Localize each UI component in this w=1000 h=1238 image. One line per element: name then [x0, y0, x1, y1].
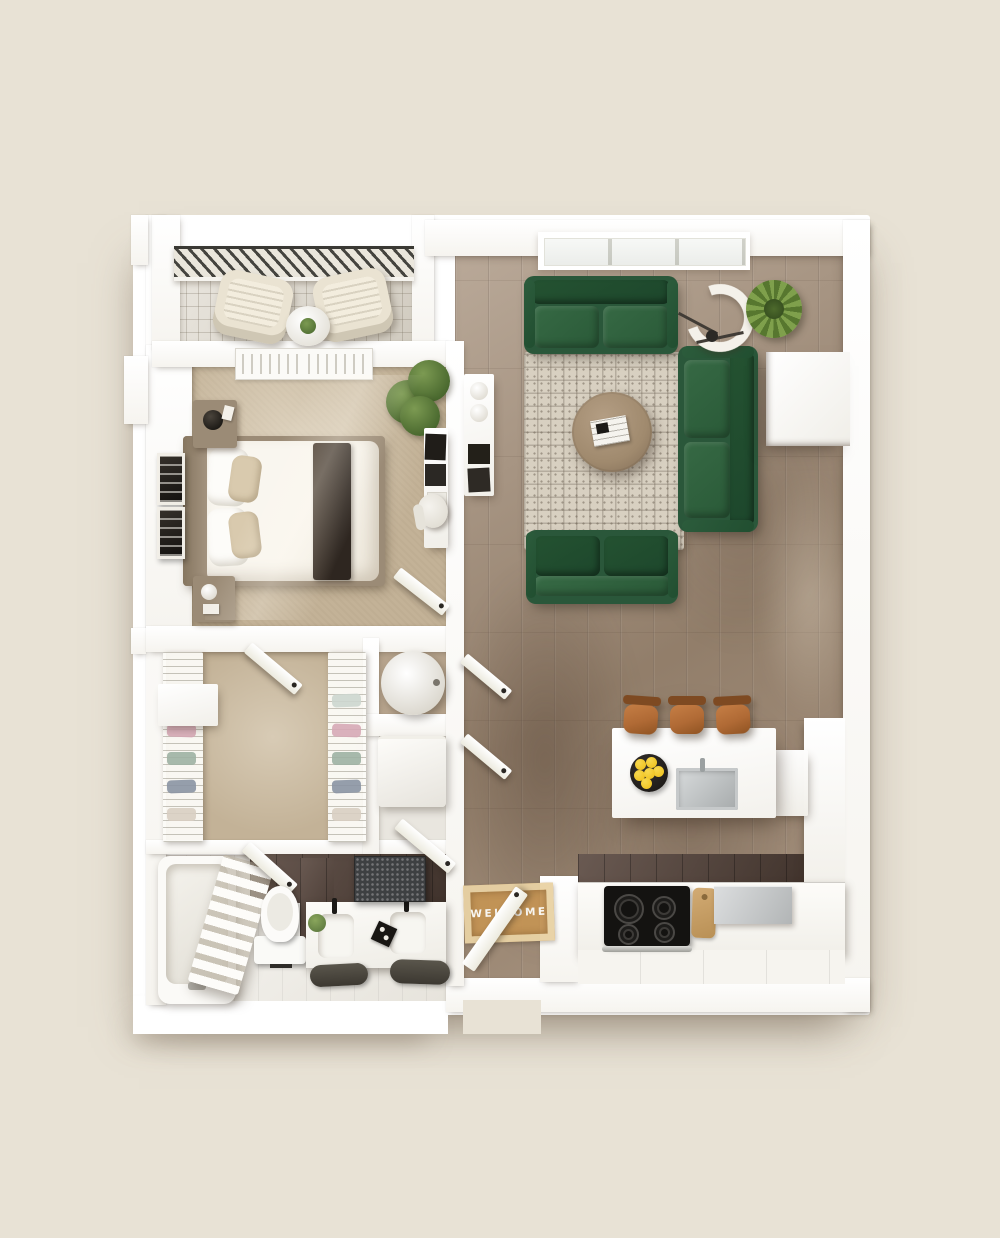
lemon-bowl [630, 754, 668, 792]
back-cushion [604, 536, 669, 576]
folded-clothes [332, 808, 361, 821]
stacked-books-dark [467, 467, 490, 492]
living-room-plant [746, 280, 802, 338]
chair-cushion [320, 275, 384, 328]
back-cushion [535, 536, 600, 576]
ceiling-vent [235, 348, 373, 380]
sofa-arm [682, 520, 754, 532]
bar-stool [619, 695, 664, 738]
sofa-arm [526, 532, 536, 598]
bath-towel [390, 959, 451, 985]
stool-seat [670, 705, 704, 734]
vent-slats [308, 354, 366, 374]
stacked-books-dark [425, 434, 447, 461]
washer [378, 736, 446, 807]
stool-seat [623, 704, 659, 735]
photo-frame [221, 405, 234, 421]
vanity-plant [308, 914, 326, 932]
toilet-supply-pipe [270, 964, 292, 968]
table-lamp [203, 410, 223, 430]
seat-cushion [534, 306, 599, 348]
closet-corner-unit [158, 684, 218, 726]
nightstand-top [193, 400, 237, 448]
closet-shelving-left [163, 652, 203, 842]
burner [654, 922, 675, 943]
media-cabinet [766, 352, 850, 446]
window-panes [544, 238, 746, 266]
toilet-bowl [261, 886, 299, 942]
decor-candle [470, 382, 488, 400]
magazine-cover-dark [596, 422, 610, 434]
lemon [635, 759, 646, 770]
folded-clothes [332, 779, 361, 793]
bedroom-closet-wall [146, 626, 456, 652]
balcony-left-wall [152, 215, 180, 350]
burner [614, 894, 644, 924]
bathroom-vanity [306, 902, 446, 968]
island-return-counter [772, 750, 808, 816]
stool-back [668, 696, 706, 705]
cutting-board [691, 888, 717, 939]
wall-art-frame [157, 507, 185, 559]
seat-bench [533, 576, 671, 596]
sofa-right-wall [678, 346, 758, 532]
folded-clothes [167, 779, 196, 793]
kitchen-island [612, 728, 776, 818]
accent-pillow [227, 510, 262, 559]
lemon [641, 778, 652, 789]
folded-clothes [167, 752, 196, 765]
seat-cushion [684, 360, 730, 438]
sofa-back [730, 352, 754, 526]
folded-clothes [332, 723, 361, 737]
island-faucet [700, 758, 705, 772]
oven-handle [602, 946, 692, 952]
stacked-books-dark [468, 444, 490, 464]
stainless-counter-section [714, 886, 792, 924]
seat-cushion [603, 306, 668, 348]
island-sink [676, 768, 738, 810]
chair-cushion [222, 277, 286, 330]
right-exterior-wall [843, 220, 870, 1012]
bed-throw-blanket [313, 443, 351, 580]
bar-stool [666, 696, 708, 736]
living-wall-console [464, 374, 494, 496]
stool-seat [715, 704, 750, 735]
folded-clothes [167, 808, 196, 821]
sofa-arm [524, 280, 535, 348]
exterior-stub-lower-left [131, 628, 146, 654]
soap-bottle [383, 934, 390, 941]
exterior-stub-top-left [131, 215, 148, 265]
toilet-lid-line [267, 893, 293, 931]
nightstand-bottom [193, 576, 235, 622]
magazines [590, 415, 630, 447]
bedroom-plant [386, 360, 450, 438]
soap-bottle [379, 926, 386, 933]
table-lamp [201, 584, 217, 600]
closet-shelving-right [328, 652, 366, 842]
patio-table [286, 306, 330, 346]
sofa-arm [668, 532, 678, 598]
headboard [183, 436, 207, 586]
folded-clothes [332, 693, 361, 707]
table-plant [300, 318, 316, 334]
board-hole [701, 894, 707, 900]
decor-candle [470, 404, 488, 422]
coffee-table [572, 392, 652, 472]
kitchen-lower-cabinets [578, 950, 845, 984]
faucet-left [332, 898, 337, 914]
wall-art-frame [157, 453, 185, 505]
toilet [254, 886, 306, 966]
bath-towel [309, 962, 368, 987]
entry-threshold-notch [463, 1000, 541, 1034]
living-room-window [538, 232, 750, 270]
seat-cushion [684, 442, 730, 518]
range-cooktop [604, 886, 690, 946]
loveseat-window [524, 276, 678, 354]
vent-slats [242, 354, 300, 374]
plant-center [764, 299, 784, 319]
sofa-back [532, 280, 670, 304]
folded-clothes [332, 752, 361, 765]
bar-stool [711, 695, 755, 737]
arc-floor-lamp [676, 280, 756, 350]
burner [652, 896, 676, 920]
heater-valve [433, 679, 440, 686]
bathroom-mirror [354, 856, 426, 902]
exterior-stub-mid-left [124, 356, 148, 424]
kitchen-tall-cabinet-column [804, 718, 845, 888]
floor-plan-render: { "scene": { "kind": "3d-floor-plan-top-… [0, 0, 1000, 1238]
lamp-base [706, 330, 718, 342]
burner [618, 924, 639, 945]
water-heater [381, 651, 445, 715]
loveseat-south [526, 530, 678, 604]
book [203, 604, 219, 614]
